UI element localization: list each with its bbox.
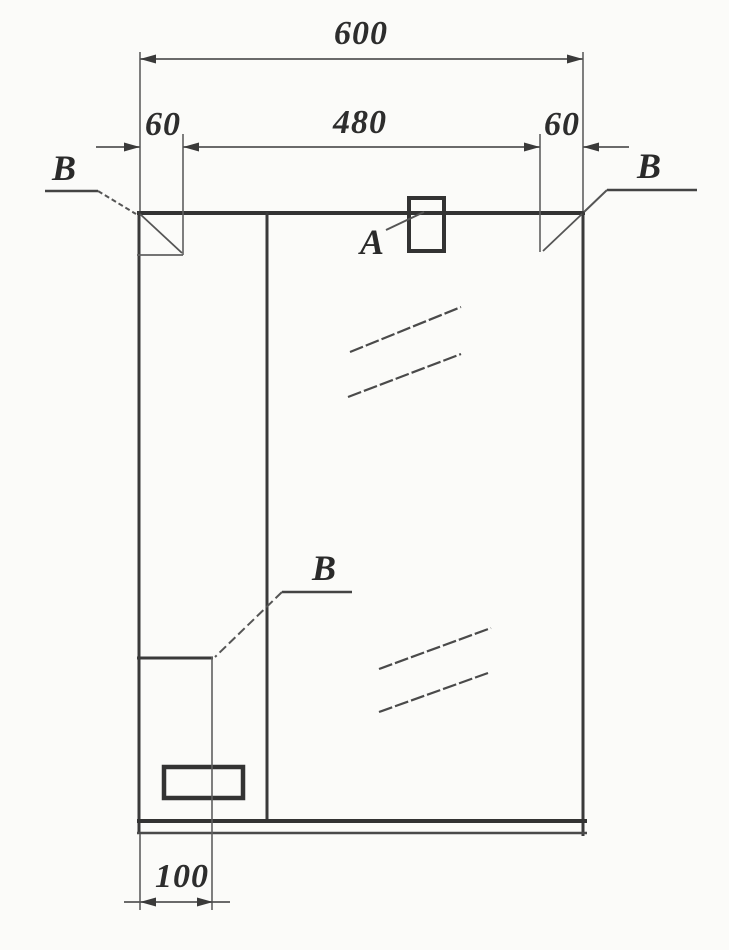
marker-text-lamp: A <box>360 224 384 260</box>
arrow-600-left <box>140 55 156 64</box>
marker-text-left-corner: B <box>52 150 76 186</box>
dim-text-door-width: 100 <box>155 860 209 894</box>
arrow-480-left <box>183 143 199 152</box>
marker-text-right-corner: B <box>637 148 661 184</box>
corner-detail-left-diagonal <box>140 214 182 253</box>
dim-text-left-offset: 60 <box>145 108 181 142</box>
marker-text-door-corner: B <box>312 550 336 586</box>
dim-text-right-offset: 60 <box>544 108 580 142</box>
mirror-hatch-upper-2 <box>348 354 461 397</box>
arrow-480-right <box>524 143 540 152</box>
drawing-linework <box>0 0 729 950</box>
technical-drawing-mirror-cabinet: 600 60 480 60 100 B B B A <box>0 0 729 950</box>
lamp-fixture <box>409 198 444 251</box>
marker-right-leader <box>584 190 607 212</box>
marker-left-leader <box>98 191 136 214</box>
dim-text-overall-width: 600 <box>334 17 388 51</box>
dim-text-center-span: 480 <box>333 106 387 140</box>
marker-door-leader <box>215 592 282 657</box>
arrow-100-left <box>140 898 156 907</box>
mirror-hatch-upper-1 <box>350 307 461 352</box>
arrow-60-right <box>583 143 599 152</box>
arrow-60-left <box>124 143 140 152</box>
corner-detail-right-diagonal <box>543 214 582 251</box>
mirror-hatch-lower-2 <box>379 673 488 712</box>
door-handle <box>164 767 243 798</box>
mirror-hatch-lower-1 <box>379 628 491 669</box>
arrow-100-right <box>197 898 213 907</box>
arrow-600-right <box>567 55 583 64</box>
